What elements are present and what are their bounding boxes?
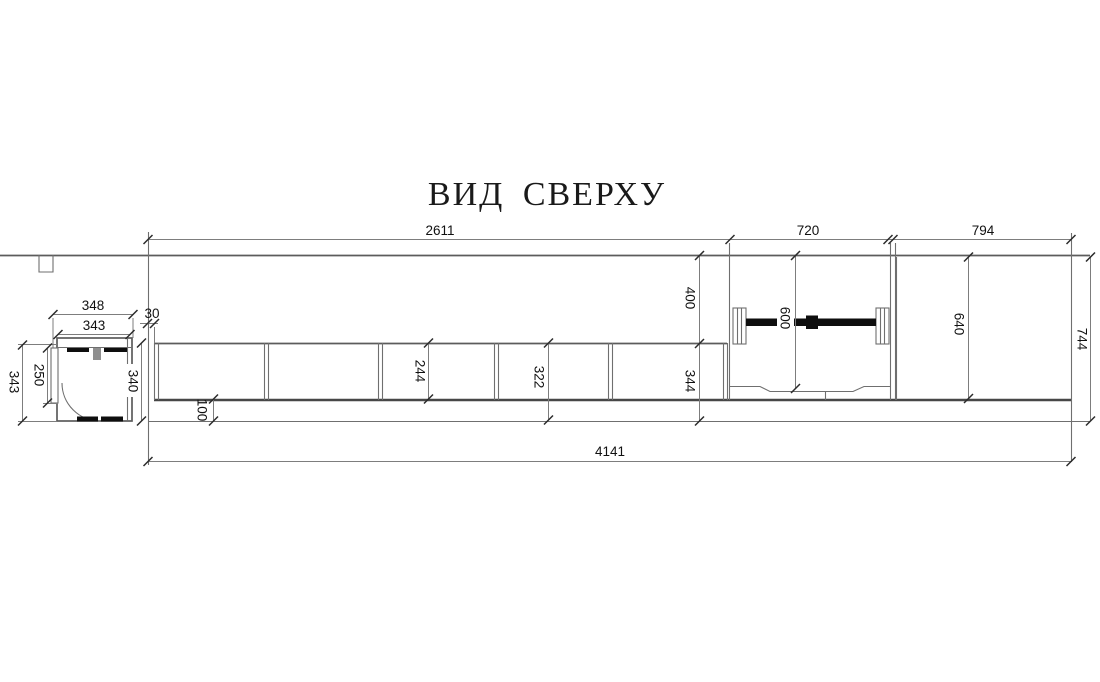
right-cabinet (897, 233, 1072, 462)
cabinet-dividers (155, 343, 728, 400)
door-front-top-left (67, 348, 89, 352)
dim-label-720: 720 (797, 223, 820, 238)
dim-label-30: 30 (144, 306, 159, 321)
wall-notch (39, 255, 53, 272)
handle-groove (729, 387, 890, 392)
top-view-kitchen-drawing: ВИД СВЕРХУ (0, 0, 1100, 682)
dim-label-343-top: 343 (83, 318, 106, 333)
dim-label-100: 100 (194, 399, 209, 422)
filler-panel (51, 348, 58, 403)
rail-bracket-left (733, 308, 746, 344)
dim-label-340: 340 (125, 370, 140, 393)
dim-label-794: 794 (972, 223, 995, 238)
dim-label-400: 400 (682, 287, 697, 310)
hinge-block (93, 348, 101, 360)
dimension-labels-horizontal: 2611 720 794 348 343 30 4141 (82, 223, 995, 459)
door-front-bottom-left (77, 417, 98, 422)
dim-label-244: 244 (412, 360, 427, 383)
dim-label-2611: 2611 (425, 223, 454, 238)
corner-cabinet (51, 338, 132, 422)
drawing-title: ВИД СВЕРХУ (428, 176, 666, 213)
dim-label-348: 348 (82, 298, 105, 313)
dim-label-744: 744 (1074, 328, 1089, 351)
dim-label-250: 250 (31, 364, 46, 387)
dim-label-322: 322 (531, 366, 546, 389)
rail-section (729, 243, 896, 400)
door-front-top-right (104, 348, 127, 352)
dim-label-640: 640 (951, 313, 966, 336)
rail-knob (806, 316, 818, 330)
dim-label-600: 600 (777, 307, 792, 330)
drawing-sheet: ВИД СВЕРХУ (0, 0, 1100, 682)
wall-lines (0, 232, 1090, 465)
dimension-lines (18, 235, 1095, 466)
dim-label-344: 344 (682, 370, 697, 393)
dim-label-343-left: 343 (6, 371, 21, 394)
dimension-ticks (18, 235, 1095, 466)
base-cabinet-row (154, 343, 1071, 400)
door-front-bottom-right (101, 417, 123, 422)
rail-bracket-right (876, 308, 889, 344)
dim-label-4141: 4141 (595, 444, 625, 459)
